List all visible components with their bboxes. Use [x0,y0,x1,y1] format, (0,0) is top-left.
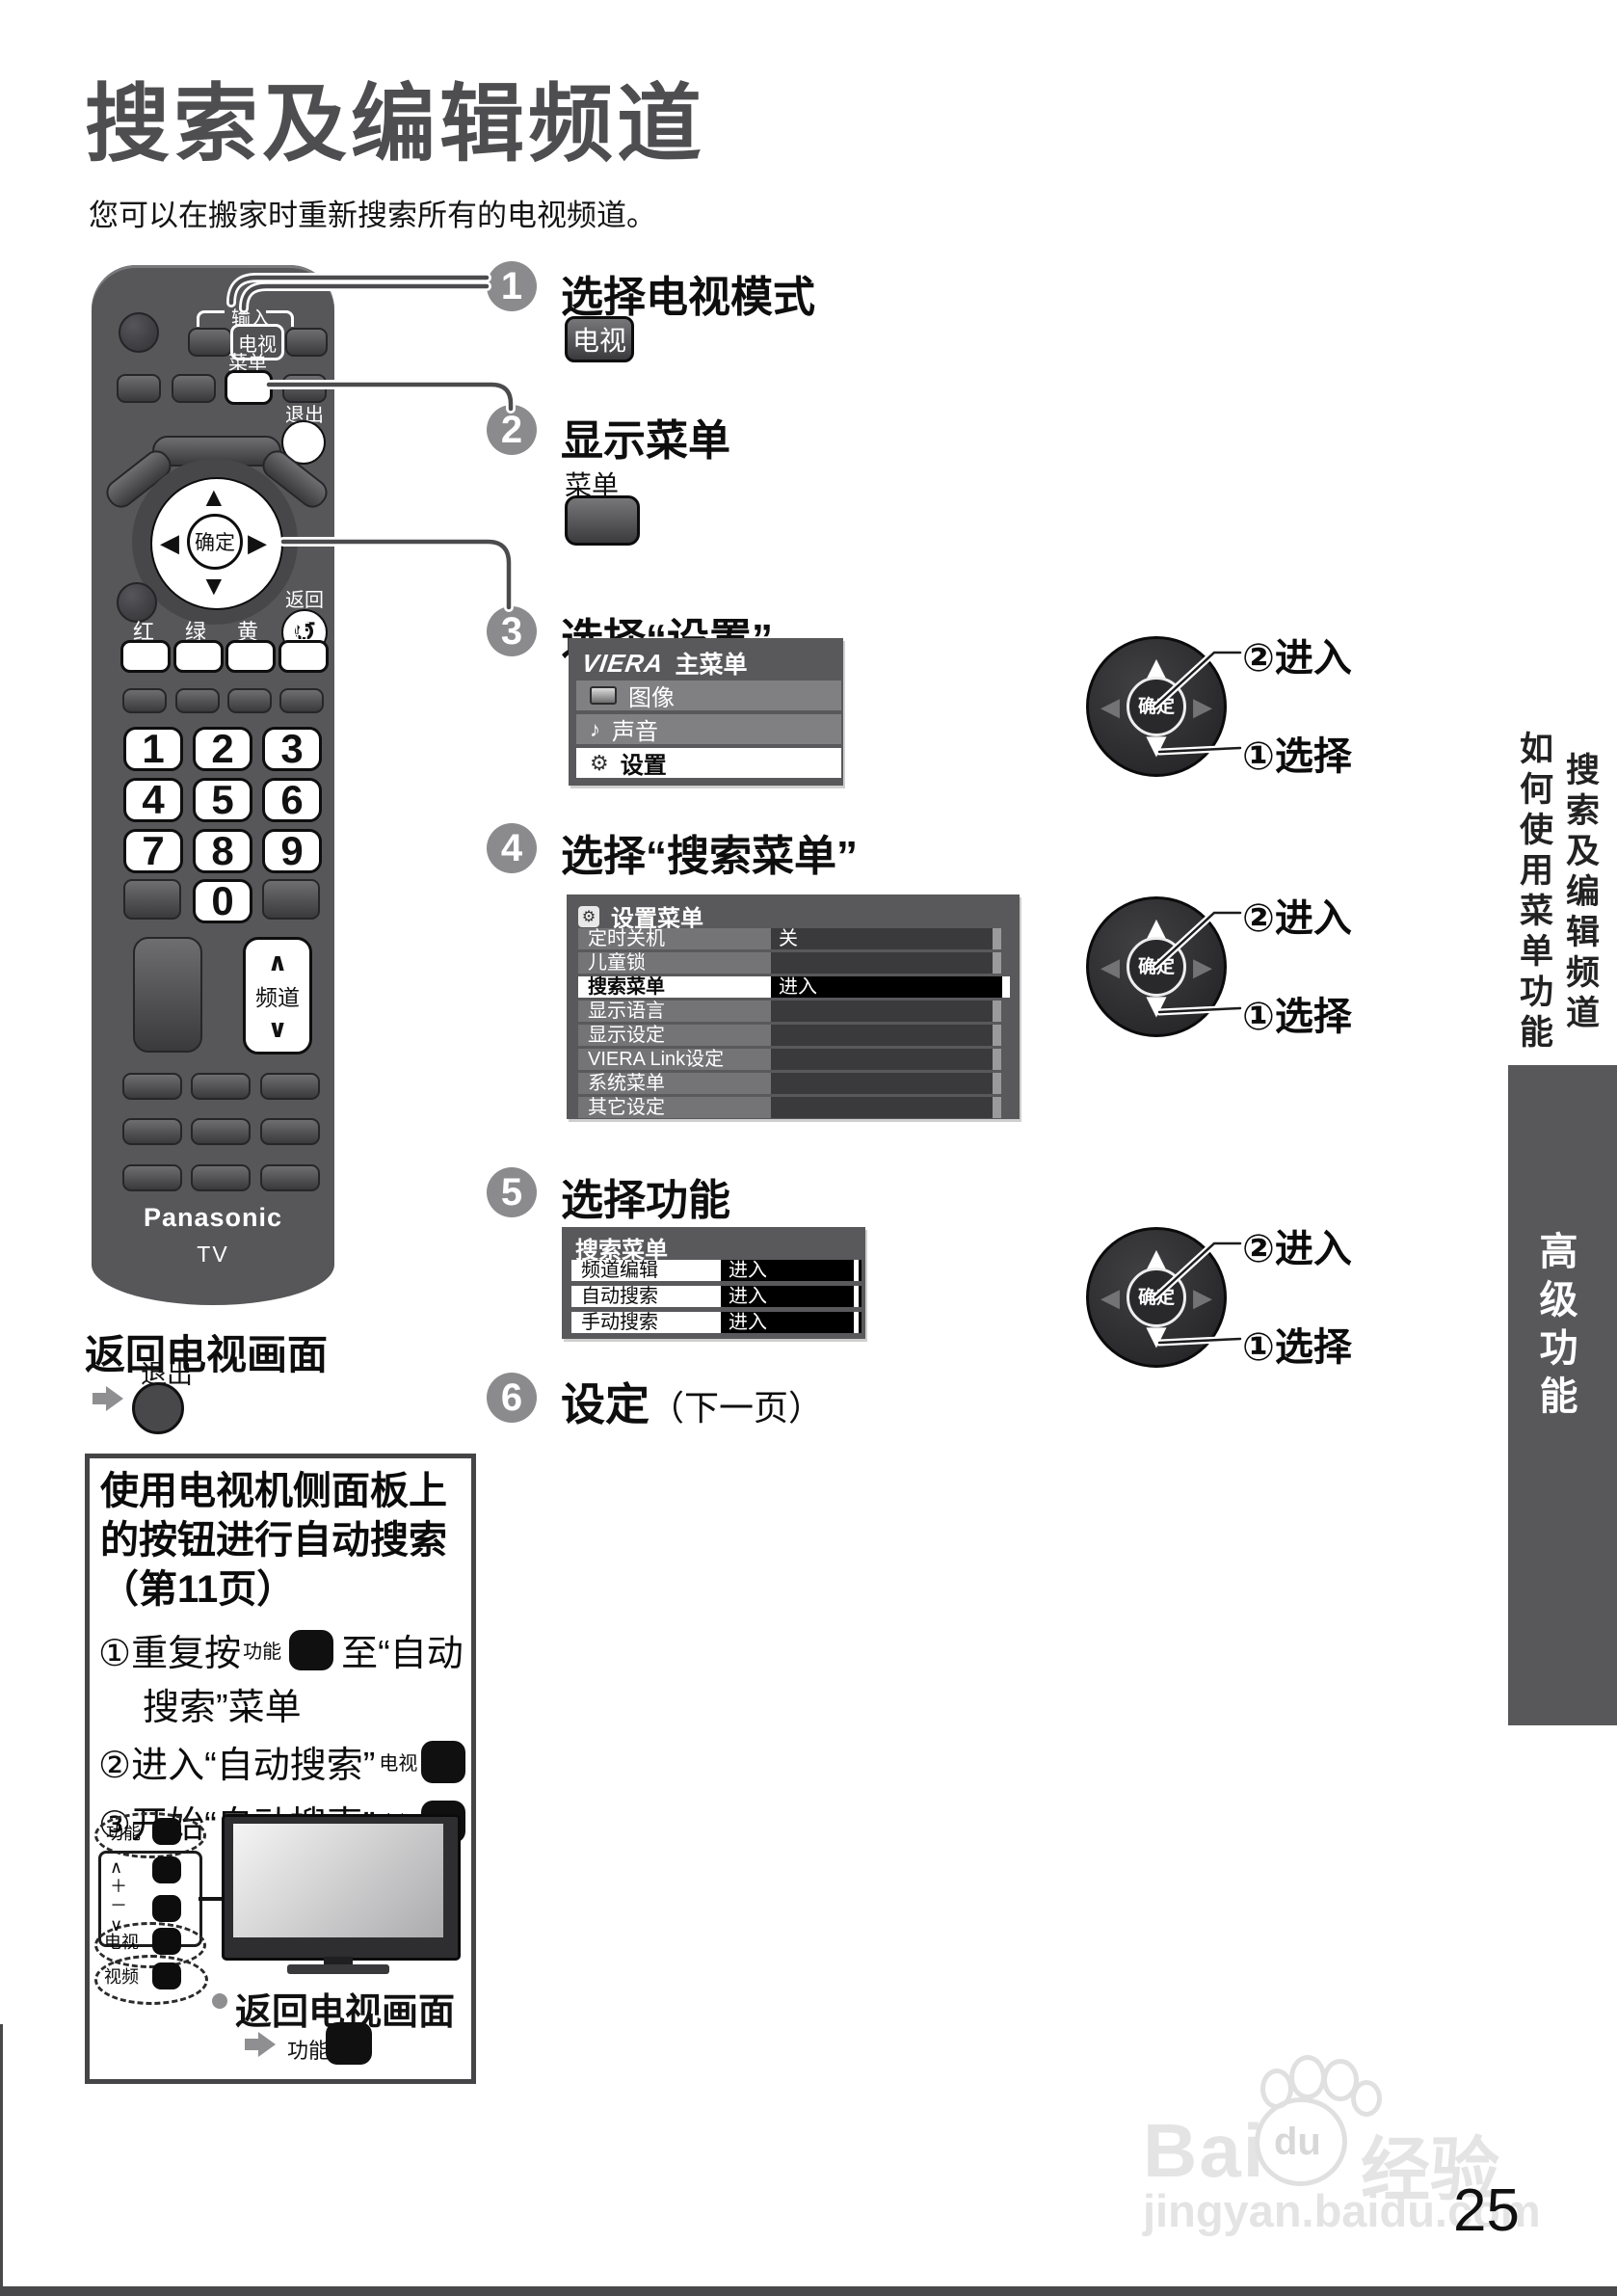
page-number: 25 [1453,2176,1520,2245]
remote-key [191,1164,251,1191]
tv-key-illustration [421,1741,465,1783]
channel-up-icon: ∧ [267,948,287,977]
panel-tv-label: 电视 [104,1934,139,1951]
panel-function-key [152,1818,181,1845]
step-number-2: 2 [487,405,537,455]
digit-key-1: 1 [123,727,183,771]
step-number-4: 4 [487,823,537,873]
dpad-right-icon: ▶ [248,528,267,558]
menu-item-label: 设置 [621,746,667,780]
menu-item-label: 声音 [612,712,658,746]
remote-key [262,879,320,920]
setup-menu: ⚙ 设置菜单 定时关机 关 儿童锁 搜索菜单 进入 显示语言 显示设定 VIER… [567,894,1020,1119]
box-footer-key-label: 功能 [287,2034,330,2065]
panel-connector-line [199,1897,222,1901]
select-callout-2: ①选择 [1242,985,1352,1041]
remote-menu-key [225,370,273,405]
setup-tools-icon: ⚙ [590,751,609,776]
panel-down-label: ∨ [110,1916,122,1934]
row-cap [993,1097,1001,1118]
dpad-down-icon: ▼ [200,571,227,601]
setup-row-value [771,1073,1000,1094]
panel-av-label: 视频 [104,1968,139,1986]
setup-row-label: 儿童锁 [578,952,776,974]
channel-key: ∧ 频道 ∨ [243,937,312,1055]
remote-key [122,1073,182,1100]
remote-key [122,1164,182,1191]
input-bracket-left [197,310,225,327]
menu-item-label: 图像 [628,679,675,712]
digit-key-6: 6 [262,778,322,822]
remote-key [260,1164,320,1191]
menu-item-picture: 图像 [576,681,841,710]
menu-item-sound: ♪ 声音 [576,714,841,744]
select-callout-3: ①选择 [1242,1316,1352,1372]
digit-key-9: 9 [262,829,322,873]
dpad-right-icon: ▶ [1193,1285,1212,1310]
dpad-left-icon: ◀ [1100,694,1120,719]
setup-row-value [771,1097,1000,1118]
dpad-up-icon: ▲ [200,482,227,513]
setup-icon: ⚙ [578,906,599,927]
box-step-2: ②进入“自动搜索” 电视 [98,1735,465,1788]
remote-key [227,688,272,713]
digit-key-5: 5 [193,778,252,822]
exit-key-illustration [132,1382,184,1434]
search-row-label: 手动搜索 [571,1312,726,1333]
digit-key-7: 7 [123,829,183,873]
digit-key-3: 3 [262,727,322,771]
setup-row-label: 定时关机 [578,928,776,949]
page-title: 搜索及编辑频道 [85,56,705,178]
page-subtitle: 您可以在搬家时重新搜索所有的电视频道。 [89,191,656,234]
yellow-key [225,640,276,673]
remote-key [279,688,324,713]
menu-key-illustration [565,495,640,546]
remote-key [122,688,167,713]
function-key-label: 功能 [243,1636,281,1664]
blue-key [278,640,329,673]
setup-row-value: 关 [771,928,1000,949]
watermark-paw-toe [1351,2080,1382,2117]
page-bottom-edge [0,2286,1617,2296]
panel-plus-label: ＋ [110,1878,127,1895]
remote-key [123,879,181,920]
return-tv-heading: 返回电视画面 [85,1322,328,1381]
setup-row-label: 显示语言 [578,1001,776,1022]
box-title-line2: 的按钮进行自动搜索 [100,1516,447,1565]
panel-tv-key [152,1928,181,1955]
tv-illustration-screen [233,1824,443,1937]
remote-key [172,374,216,403]
ok-key: 确定 [1127,937,1186,997]
row-cap [993,1049,1001,1070]
setup-row-value [771,1049,1000,1070]
row-cap [993,928,1001,949]
remote-body-bottom [92,1265,334,1305]
step-title-2: 显示菜单 [561,406,730,467]
box-step1-post: 至“自动 [341,1623,464,1676]
enter-callout-1: ②进入 [1242,627,1352,682]
digit-key-8: 8 [193,829,252,873]
menu-item-setup: ⚙ 设置 [576,748,841,778]
dpad-left-icon: ◀ [1100,1285,1120,1310]
brand-logo: Panasonic [92,1203,334,1233]
watermark-paw-toe [1289,2055,1326,2099]
search-row-label: 频道编辑 [571,1260,726,1281]
box-step2-text: ②进入“自动搜索” [98,1735,375,1788]
remote-key [285,328,328,357]
row-cap [854,1260,859,1281]
remote-key [260,1073,320,1100]
volume-key [133,937,202,1053]
dpad-left-icon: ◀ [160,528,179,558]
row-cap [854,1286,859,1307]
setup-row-value [771,1025,1000,1046]
green-key [173,640,224,673]
box-step-1-line2: 搜索”菜单 [143,1677,302,1730]
step-number-6: 6 [487,1373,537,1423]
row-cap [993,952,1001,974]
search-row-value: 进入 [721,1260,862,1281]
setup-row-value [771,1001,1000,1022]
row-cap [854,1312,859,1333]
dpad-left-icon: ◀ [1100,954,1120,979]
digit-key-4: 4 [123,778,183,822]
ok-key: 确定 [1127,677,1186,736]
enter-callout-3: ②进入 [1242,1217,1352,1273]
step-title-1: 选择电视模式 [561,262,815,324]
search-row-value: 进入 [721,1286,862,1307]
box-title-line3: （第11页） [100,1565,295,1615]
viera-menu-title: 主菜单 [675,646,747,681]
watermark-du-text: du [1274,2121,1321,2164]
row-cap [993,1073,1001,1094]
box-title-line1: 使用电视机侧面板上 [100,1467,447,1516]
step-number-5: 5 [487,1167,537,1217]
viera-logo: VIERA [580,649,666,679]
viera-menu-header: VIERA 主菜单 [582,646,747,681]
tv-stand-neck [324,1957,353,1964]
digit-key-2: 2 [193,727,252,771]
panel-minus-label: － [110,1897,127,1914]
viera-main-menu: VIERA 主菜单 图像 ♪ 声音 ⚙ 设置 [569,638,843,786]
enter-callout-2: ②进入 [1242,887,1352,943]
watermark-baidu-text: Bai [1143,2107,1265,2195]
channel-down-icon: ∨ [267,1014,287,1044]
function-key-illustration [289,1630,333,1670]
remote-key [260,1118,320,1145]
step-number-1: 1 [487,261,537,311]
red-key [120,640,171,673]
picture-icon [590,686,617,705]
dpad-illustration-3: ▲ ▼ ◀ ▶ 确定 [1086,1227,1227,1368]
channel-key-label: 频道 [255,979,300,1012]
setup-row-label: 其它设定 [578,1097,776,1118]
remote-key [175,688,220,713]
dpad-illustration-1: ▲ ▼ ◀ ▶ 确定 [1086,636,1227,777]
tv-key-label: 电视 [379,1748,417,1775]
search-row-value: 进入 [721,1312,862,1333]
select-callout-1: ①选择 [1242,725,1352,781]
model-label: TV [92,1241,334,1268]
dpad-right-icon: ▶ [1193,954,1212,979]
bullet-icon [212,1993,227,2009]
setup-row-label: 显示设定 [578,1025,776,1046]
row-cap [993,1001,1001,1022]
music-note-icon: ♪ [590,717,600,742]
remote-key [117,374,161,403]
function-key-illustration [326,2022,372,2065]
power-button [119,312,159,353]
step6-suffix: （下一页） [649,1388,823,1428]
tv-stand-base [287,1964,389,1974]
setup-row-label-selected: 搜索菜单 [578,976,776,998]
row-cap [993,1025,1001,1046]
search-row-label: 自动搜索 [571,1286,726,1307]
sidebar-tab-advanced: 高级功能 [1508,1065,1617,1725]
dpad-illustration-2: ▲ ▼ ◀ ▶ 确定 [1086,896,1227,1037]
setup-row-value [771,952,1000,974]
step-title-4: 选择“搜索菜单” [561,821,858,883]
ok-key: 确定 [1127,1268,1186,1327]
box-step-1: ①重复按 功能 至“自动 [98,1623,464,1676]
remote-ok-key: 确定 [187,514,243,570]
setup-row-label: 系统菜单 [578,1073,776,1094]
setup-row-label: VIERA Link设定 [578,1049,776,1070]
row-cap [1002,976,1010,998]
box-step1-pre: ①重复按 [98,1623,241,1676]
panel-function-label: 功能 [106,1825,141,1842]
step-title-6: 设定（下一页） [561,1370,823,1433]
sidebar-tab-label: 高级功能 [1543,1231,1583,1424]
remote-key [191,1073,251,1100]
panel-av-key [152,1962,181,1989]
panel-down-key [152,1895,181,1922]
step6-text: 设定 [561,1379,649,1429]
search-menu: 搜索菜单 频道编辑 进入 自动搜索 进入 手动搜索 进入 [562,1227,865,1339]
dpad-right-icon: ▶ [1193,694,1212,719]
setup-row-value-selected: 进入 [771,976,1010,998]
remote-key [191,1118,251,1145]
manual-page: 搜索及编辑频道 您可以在搬家时重新搜索所有的电视频道。 输入 电视 菜单 退出 … [0,0,1617,2296]
watermark-paw-toe [1260,2069,1293,2109]
remote-key [122,1118,182,1145]
digit-key-0: 0 [193,879,252,923]
page-left-edge [0,2024,3,2296]
step-number-3: 3 [487,606,537,656]
panel-up-label: ∧ [110,1858,122,1876]
panel-up-key [152,1856,181,1883]
tv-key-illustration: 电视 [565,316,634,362]
back-key-label: 返回 [285,584,324,612]
sidebar-text-chapter: 搜索及编辑频道 [1555,752,1604,1035]
step-title-5: 选择功能 [561,1165,730,1227]
remote-key [188,328,232,357]
sidebar-text-howto: 如何使用菜单功能 [1509,731,1558,1055]
